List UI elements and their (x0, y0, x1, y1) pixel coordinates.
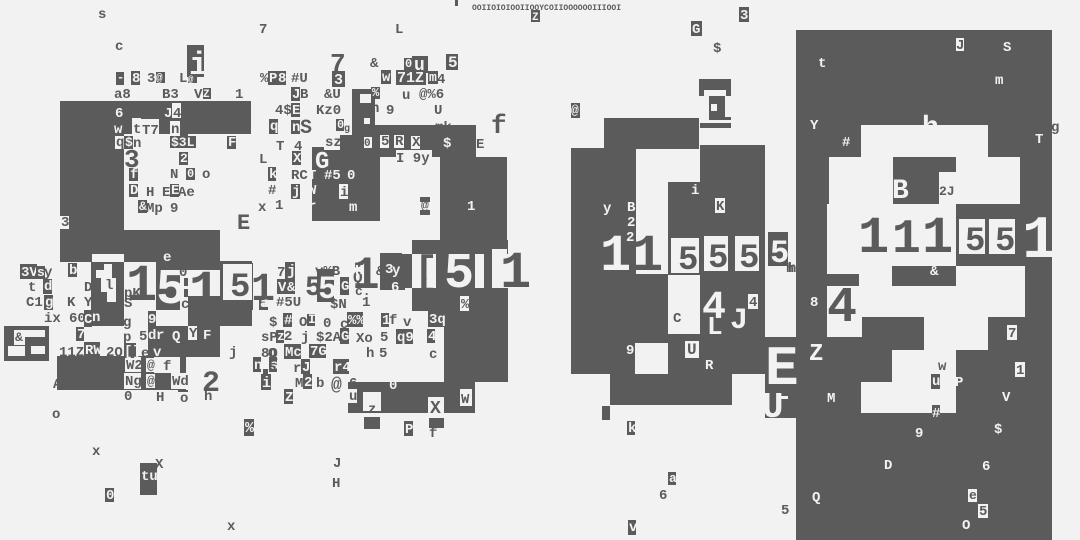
svg-text:R: R (705, 358, 714, 374)
svg-text:I 9y: I 9y (396, 151, 430, 167)
svg-text:D: D (130, 183, 138, 199)
svg-text:60: 60 (69, 311, 86, 327)
svg-text:@: @ (156, 73, 163, 85)
svg-text:#5U: #5U (276, 295, 301, 311)
svg-text:U: U (762, 387, 784, 428)
svg-text:V: V (194, 87, 203, 103)
svg-text:q: q (270, 119, 278, 135)
svg-text:mk: mk (435, 120, 452, 136)
svg-text:X: X (155, 457, 164, 473)
svg-text:RC: RC (291, 168, 308, 184)
svg-text:T: T (1035, 132, 1043, 148)
svg-text:K: K (67, 295, 76, 311)
svg-text:d: d (44, 279, 52, 295)
svg-text:2: 2 (627, 215, 635, 231)
svg-text:$2A: $2A (316, 330, 342, 346)
svg-text:J: J (333, 456, 341, 472)
svg-text:U: U (434, 103, 442, 119)
svg-text:4$: 4$ (275, 103, 292, 119)
svg-text:0: 0 (405, 57, 412, 71)
svg-text:g: g (123, 315, 131, 331)
svg-text:$N: $N (330, 297, 347, 313)
svg-text:5: 5 (230, 269, 250, 307)
svg-text:b: b (69, 263, 77, 279)
svg-text:r: r (156, 328, 164, 344)
svg-text:5: 5 (979, 504, 987, 520)
svg-text:g: g (1051, 120, 1059, 136)
svg-text:H: H (146, 185, 154, 201)
svg-text:Mp: Mp (146, 201, 163, 217)
svg-text:v: v (153, 345, 162, 361)
svg-text:9: 9 (148, 312, 156, 328)
svg-text:t: t (28, 280, 36, 296)
svg-text:M: M (827, 391, 835, 407)
svg-text:h: h (786, 261, 794, 276)
svg-text:G: G (341, 279, 349, 295)
svg-text:k: k (628, 421, 636, 437)
svg-text:Z: Z (203, 89, 210, 101)
svg-text:&: & (370, 56, 379, 72)
svg-text:71Z: 71Z (397, 70, 424, 87)
svg-text:Y: Y (84, 295, 93, 311)
svg-text:S: S (1003, 40, 1011, 56)
svg-text:c: c (115, 39, 123, 55)
svg-text:%: % (245, 420, 255, 437)
svg-text:1: 1 (235, 87, 243, 103)
svg-text:x: x (92, 444, 101, 460)
svg-text:M: M (295, 376, 303, 392)
svg-text:B: B (300, 87, 309, 103)
svg-text:2: 2 (304, 375, 312, 391)
svg-text:@: @ (188, 75, 194, 85)
svg-text:7: 7 (277, 265, 285, 281)
svg-text:2Q: 2Q (106, 345, 123, 361)
svg-text:%: % (260, 71, 269, 87)
svg-text:6: 6 (391, 280, 399, 296)
svg-text:7: 7 (259, 22, 267, 38)
svg-text:@%6: @%6 (419, 87, 444, 103)
svg-text:F: F (203, 328, 211, 344)
svg-text:@: @ (331, 376, 342, 396)
svg-text:Z: Z (285, 390, 293, 406)
svg-text:6: 6 (982, 459, 990, 475)
svg-text:r: r (308, 199, 316, 215)
svg-text:4: 4 (827, 280, 857, 337)
svg-text:Q: Q (812, 490, 820, 506)
svg-text:5: 5 (268, 361, 276, 377)
svg-text:E: E (476, 137, 484, 153)
svg-text:@: @ (571, 103, 579, 118)
svg-text:A: A (53, 377, 62, 393)
svg-text:X: X (412, 135, 421, 151)
svg-text:ix: ix (44, 311, 61, 327)
svg-text:Ae: Ae (178, 185, 195, 201)
svg-text:R: R (395, 134, 404, 150)
svg-text:D: D (884, 458, 892, 474)
svg-text:5: 5 (678, 242, 698, 280)
svg-text:w: w (114, 122, 123, 138)
svg-text:J: J (730, 304, 748, 338)
svg-text:z: z (368, 402, 376, 418)
svg-text:T: T (308, 168, 316, 184)
svg-text:Z: Z (532, 12, 539, 24)
svg-text:8Q: 8Q (261, 346, 278, 362)
svg-text:&: & (287, 280, 296, 296)
svg-text:Wd: Wd (172, 374, 189, 390)
svg-text:j: j (301, 330, 309, 346)
svg-text:x: x (227, 519, 236, 535)
svg-text:W: W (308, 183, 317, 199)
svg-text:P: P (269, 71, 277, 87)
svg-text:6: 6 (659, 488, 667, 504)
svg-text:O: O (299, 315, 307, 331)
svg-text:H: H (332, 476, 340, 492)
svg-text:C: C (673, 311, 682, 327)
svg-text:g.v m: g.v m (344, 124, 374, 135)
svg-text:Y: Y (189, 326, 198, 342)
svg-text:B: B (627, 200, 636, 216)
svg-text:1: 1 (892, 213, 921, 267)
svg-text:9: 9 (386, 103, 394, 119)
svg-text:3q: 3q (429, 312, 446, 328)
svg-text:o: o (52, 407, 60, 423)
svg-text:n: n (92, 310, 100, 326)
svg-text:&: & (15, 330, 23, 345)
svg-text:N: N (170, 167, 178, 183)
svg-text:B3: B3 (162, 87, 179, 103)
svg-text:c: c (429, 347, 437, 363)
svg-text:k: k (269, 167, 277, 183)
svg-text:j: j (292, 184, 300, 200)
svg-text:J: J (302, 360, 310, 376)
svg-text:u: u (932, 374, 940, 390)
svg-text:v: v (403, 315, 412, 331)
svg-text:f: f (163, 359, 171, 375)
svg-text:#: # (284, 313, 292, 329)
svg-text:5: 5 (739, 240, 759, 278)
svg-text:a: a (669, 471, 677, 486)
svg-text:c: c (181, 297, 189, 313)
svg-text:g: g (45, 295, 53, 311)
svg-text:3: 3 (124, 145, 140, 175)
svg-text:e: e (141, 346, 149, 362)
svg-text:V: V (1002, 390, 1011, 406)
svg-text:7: 7 (77, 327, 85, 343)
svg-text:u: u (402, 88, 410, 104)
svg-text:1: 1 (500, 244, 531, 303)
svg-text:K: K (716, 199, 725, 215)
svg-text:J: J (164, 106, 172, 122)
svg-text:1: 1 (858, 209, 889, 268)
svg-text:G: G (692, 22, 700, 38)
svg-text:5: 5 (381, 134, 389, 150)
svg-text:m: m (349, 200, 357, 216)
svg-text:p: p (123, 330, 131, 346)
svg-text:&: & (376, 264, 385, 280)
svg-text:Q: Q (172, 329, 180, 345)
svg-text:@: @ (147, 374, 155, 389)
svg-text:E: E (162, 185, 170, 201)
svg-text:&U: &U (324, 87, 341, 103)
svg-text:5: 5 (380, 330, 388, 346)
svg-text:$: $ (269, 315, 277, 331)
svg-text:0: 0 (364, 138, 371, 150)
svg-text:Kz0: Kz0 (316, 103, 341, 119)
svg-text:Ng: Ng (125, 374, 142, 390)
svg-text:Z: Z (809, 341, 823, 368)
svg-text:0: 0 (106, 488, 114, 504)
svg-text:3V: 3V (21, 265, 38, 281)
svg-text:4: 4 (437, 72, 445, 88)
svg-text:m: m (995, 73, 1003, 89)
svg-text:#5: #5 (324, 168, 341, 184)
svg-text:#: # (842, 135, 850, 151)
svg-text:o: o (202, 167, 210, 183)
svg-text:r: r (293, 361, 301, 377)
svg-text:Y: Y (810, 118, 819, 134)
svg-text:$: $ (994, 422, 1002, 438)
svg-text:@: @ (421, 198, 429, 213)
svg-text:2: 2 (180, 151, 188, 166)
svg-text:$: $ (713, 41, 721, 57)
svg-text:y: y (603, 201, 612, 217)
svg-text:T7: T7 (142, 123, 159, 139)
svg-text:D: D (84, 280, 92, 296)
svg-text:b: b (316, 376, 324, 392)
svg-text:O: O (962, 518, 970, 534)
svg-text:8: 8 (132, 71, 140, 87)
svg-text:1: 1 (467, 199, 475, 215)
svg-text:9: 9 (626, 343, 634, 359)
svg-text:r4: r4 (334, 360, 351, 376)
svg-text:L: L (259, 152, 267, 168)
svg-text:E: E (237, 211, 250, 236)
svg-text:i: i (340, 185, 348, 201)
svg-text:T: T (276, 139, 284, 155)
svg-text:3: 3 (740, 8, 748, 24)
svg-text:%%: %% (348, 313, 365, 329)
svg-text:1: 1 (1016, 363, 1024, 379)
svg-text:w: w (382, 70, 391, 86)
svg-text:OIIOOOOOOIIIOOI: OIIOOOOOOIIIOOI (549, 4, 621, 13)
svg-text:3: 3 (147, 71, 155, 87)
svg-text:v: v (629, 520, 638, 536)
svg-text:0: 0 (179, 265, 187, 281)
svg-text:y: y (392, 263, 401, 279)
svg-text:5: 5 (781, 503, 789, 519)
svg-text:%: % (372, 86, 380, 100)
svg-text:#U: #U (291, 71, 308, 87)
svg-text:11Z: 11Z (59, 345, 84, 361)
svg-text:6: 6 (115, 106, 123, 122)
svg-text:8: 8 (810, 295, 818, 311)
svg-text:0: 0 (347, 168, 355, 184)
svg-text:v%B: v%B (315, 264, 341, 280)
svg-text:x: x (258, 200, 267, 216)
svg-text:h: h (366, 346, 374, 362)
svg-text:P: P (955, 375, 963, 391)
svg-text:i: i (691, 183, 699, 199)
svg-text:a8: a8 (114, 87, 131, 103)
svg-text:1: 1 (275, 198, 283, 214)
svg-text:V: V (278, 280, 287, 296)
svg-text:t: t (818, 56, 826, 72)
svg-text:L: L (179, 71, 187, 87)
svg-text:OOIIOIOIOOIIOOYC: OOIIOIOIOOIIOOYC (472, 4, 549, 13)
svg-text:s: s (98, 7, 106, 23)
svg-text:P: P (405, 422, 413, 438)
svg-text:S: S (124, 296, 132, 312)
svg-text:RW: RW (85, 343, 102, 359)
svg-text:3: 3 (61, 215, 69, 231)
svg-text:sP: sP (261, 330, 278, 346)
svg-text:5: 5 (444, 246, 474, 303)
svg-text:5: 5 (379, 346, 387, 362)
svg-text:0: 0 (187, 167, 194, 181)
svg-text:j: j (287, 263, 296, 280)
svg-text:1: 1 (189, 263, 220, 322)
svg-text:n: n (371, 101, 379, 117)
svg-text:Mc: Mc (285, 345, 302, 361)
svg-text:#: # (932, 406, 940, 422)
svg-text:j: j (229, 345, 237, 361)
svg-text:m: m (429, 70, 437, 85)
svg-text:y: y (44, 265, 53, 281)
svg-text:W: W (461, 392, 470, 408)
svg-text:8: 8 (278, 71, 286, 87)
svg-text:q9: q9 (397, 330, 414, 346)
svg-text:1: 1 (922, 209, 953, 268)
svg-text:$: $ (443, 136, 451, 152)
svg-text:5: 5 (139, 329, 147, 345)
svg-text:$3L: $3L (171, 135, 195, 150)
svg-text:f: f (491, 111, 507, 141)
svg-text:[: [ (419, 277, 429, 295)
svg-text:h: h (922, 113, 939, 144)
svg-text:5: 5 (995, 223, 1015, 261)
svg-text:o: o (180, 391, 188, 407)
svg-text:4: 4 (173, 106, 181, 122)
svg-text:[]: [] (124, 344, 141, 360)
svg-text:e: e (163, 250, 171, 266)
svg-text:0: 0 (389, 378, 397, 394)
svg-text:i: i (262, 375, 271, 392)
svg-text:a: a (262, 296, 271, 312)
svg-text:7G: 7G (310, 344, 327, 360)
svg-text:c: c (340, 317, 348, 333)
svg-text:H: H (355, 263, 363, 279)
svg-text:#: # (268, 183, 276, 199)
svg-text:e: e (969, 488, 977, 503)
svg-text:2J: 2J (939, 184, 955, 199)
svg-text:L: L (395, 22, 403, 38)
svg-text:5: 5 (448, 54, 458, 72)
svg-text:7: 7 (1008, 326, 1016, 342)
svg-text:2: 2 (284, 329, 292, 345)
svg-text:2: 2 (626, 230, 634, 246)
svg-text:B: B (892, 176, 909, 207)
svg-text:w: w (938, 359, 947, 375)
svg-text:4: 4 (294, 139, 302, 155)
svg-text:U: U (687, 341, 697, 359)
svg-text:4: 4 (428, 329, 436, 345)
svg-text:C1: C1 (26, 295, 43, 311)
svg-text:0: 0 (124, 389, 132, 405)
svg-text:l: l (105, 278, 113, 294)
svg-text:h: h (204, 389, 212, 405)
svg-text:-: - (117, 71, 124, 85)
svg-text:X: X (430, 399, 441, 419)
svg-text:J: J (956, 38, 964, 54)
svg-text:S: S (300, 117, 312, 140)
svg-text:1: 1 (632, 227, 663, 286)
svg-text:H: H (156, 390, 164, 406)
svg-text:F: F (228, 135, 236, 151)
svg-text:4: 4 (749, 295, 757, 311)
svg-text:7: 7 (330, 49, 346, 79)
svg-text:1: 1 (1022, 208, 1058, 276)
svg-text:f: f (429, 426, 437, 442)
svg-text:Xo: Xo (356, 331, 373, 347)
svg-text:L: L (707, 312, 723, 342)
svg-text:&: & (930, 264, 939, 280)
svg-text:I: I (308, 312, 316, 327)
svg-text:9: 9 (170, 201, 178, 217)
svg-text:6: 6 (349, 376, 357, 392)
svg-text:1: 1 (362, 295, 370, 311)
svg-text:9: 9 (915, 426, 923, 442)
svg-text:5: 5 (965, 223, 985, 261)
svg-text:5: 5 (708, 240, 728, 278)
svg-text:f: f (389, 313, 397, 329)
